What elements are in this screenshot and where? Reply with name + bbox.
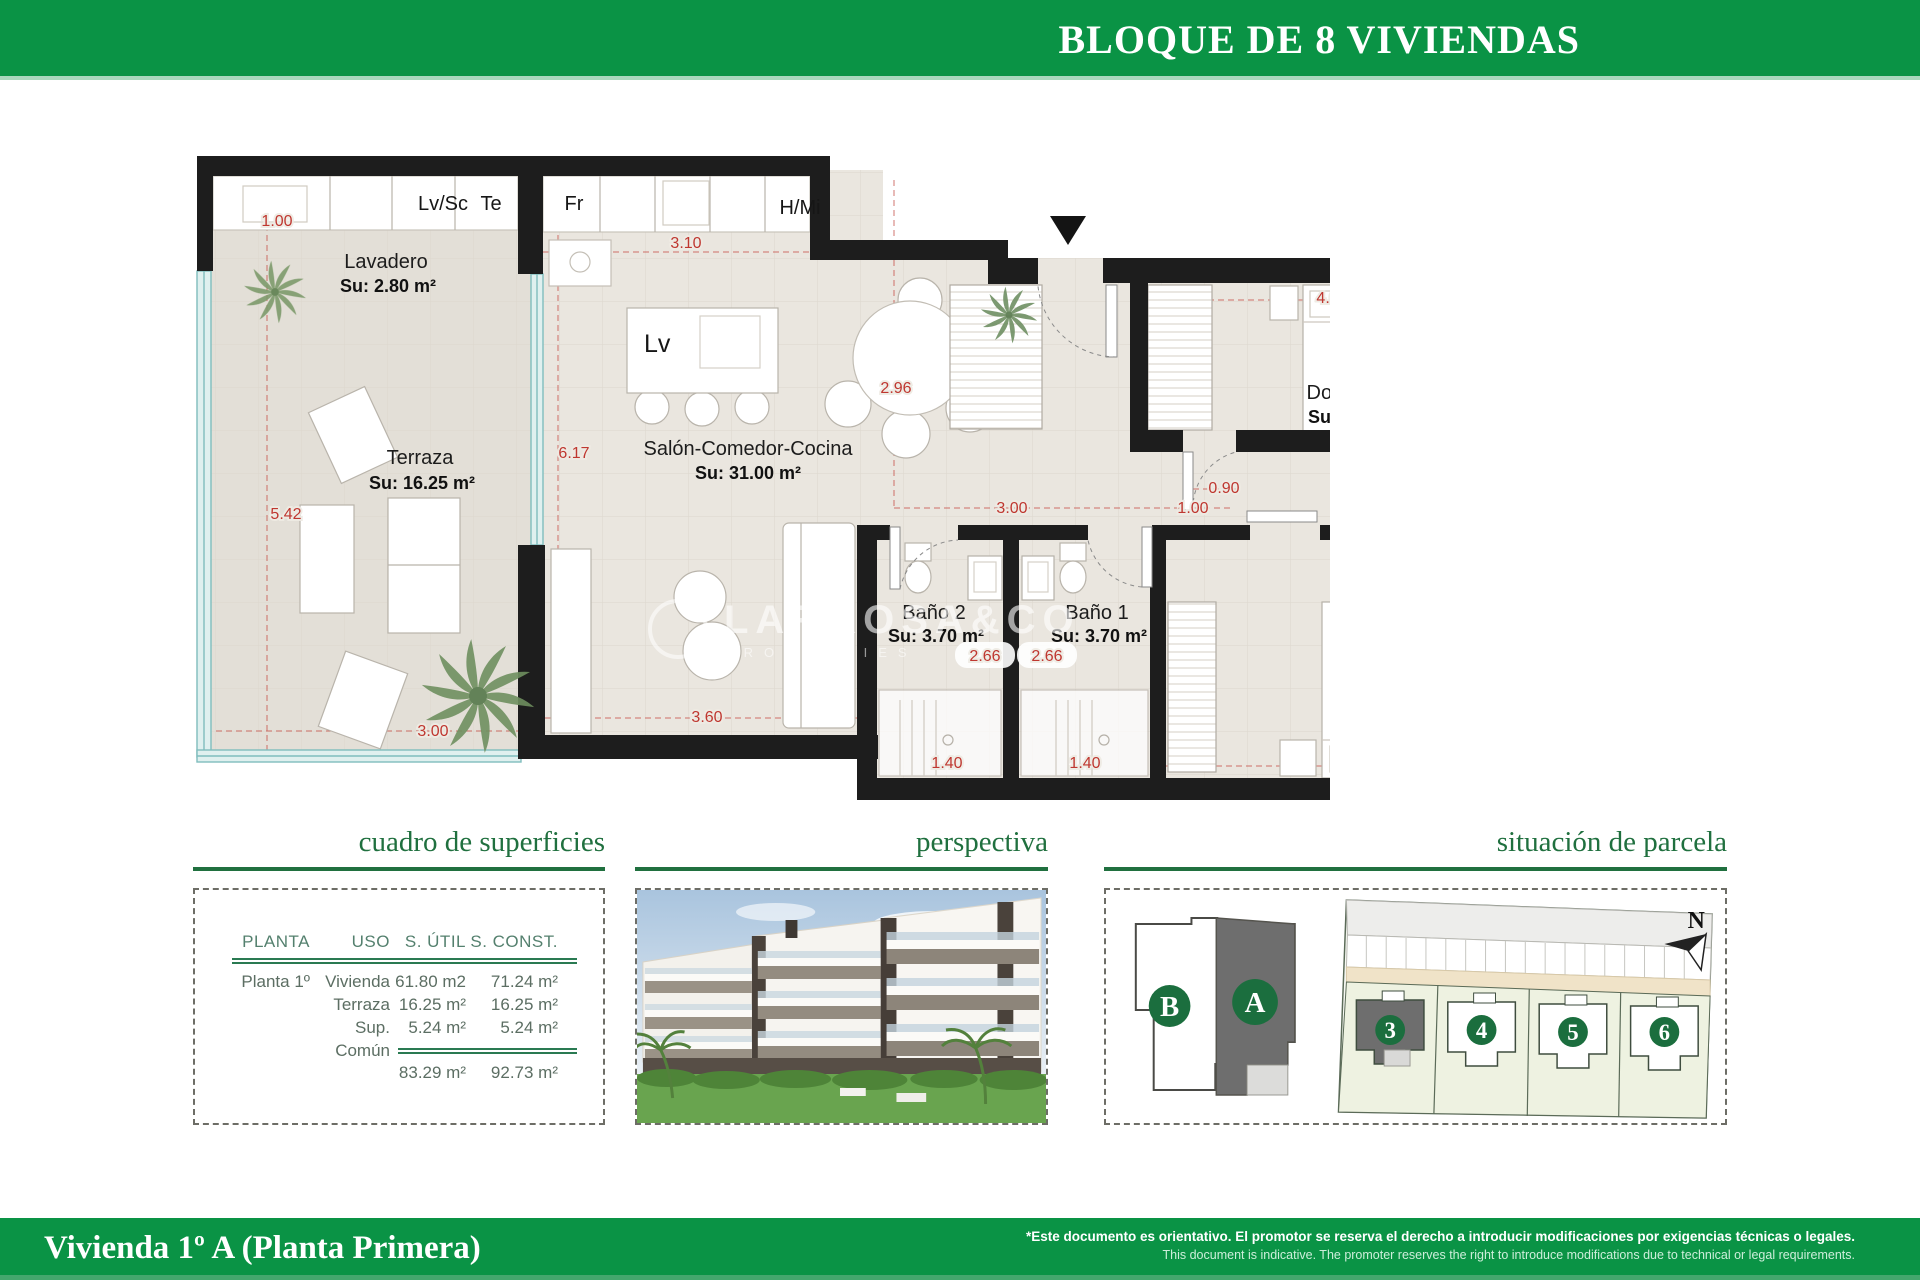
totals-row: 83.29 m² 92.73 m²	[232, 1061, 577, 1084]
plot-3-label: 3	[1384, 1018, 1395, 1043]
dim-terraza-width: 3.00	[417, 723, 448, 740]
fixture-label-lv: Lv	[644, 330, 671, 358]
cell-uso: Terraza	[310, 993, 390, 1016]
perspectiva-box	[635, 888, 1048, 1125]
table-divider	[232, 958, 577, 964]
surface-table: PLANTA USO S. ÚTIL S. CONST. Planta 1º V…	[232, 930, 577, 1084]
dim-bano2-depth: 2.66	[969, 648, 1000, 665]
dim-bano2-width: 1.40	[931, 755, 962, 772]
cell-const: 71.24 m²	[466, 970, 577, 993]
cell-const: 5.24 m²	[466, 1016, 577, 1062]
disclaimer-en: This document is indicative. The promote…	[1026, 1246, 1855, 1265]
col-header-util: S. ÚTIL	[390, 930, 466, 956]
situacion-box: B A	[1104, 888, 1727, 1125]
room-label-dorm2: Dormitorio 2	[1307, 382, 1330, 404]
entrance-arrow-icon	[1050, 216, 1086, 245]
plot-5-label: 5	[1567, 1020, 1578, 1045]
section-underline-perspectiva	[635, 867, 1048, 871]
room-su-dorm2: Su: 10.00 m²	[1308, 407, 1330, 427]
section-title-situacion: situación de parcela	[1104, 826, 1727, 864]
room-label-bano2: Baño 2	[902, 602, 965, 624]
perspective-rendering	[637, 890, 1046, 1123]
col-header-planta: PLANTA	[232, 930, 310, 956]
dim-kitchen: 3.10	[670, 235, 701, 252]
room-su-lavadero: Su: 2.80 m²	[340, 276, 436, 296]
block-a-terrace	[1247, 1065, 1288, 1095]
fixture-label-lvsc: Lv/Sc	[418, 193, 468, 215]
room-su-bano1: Su: 3.70 m²	[1051, 626, 1147, 646]
fixture-label-fr: Fr	[565, 193, 584, 215]
footer-bar-edge	[0, 1275, 1920, 1280]
dim-bano1-depth: 2.66	[1031, 648, 1062, 665]
dim-terraza-height: 5.42	[270, 506, 301, 523]
section-underline-cuadro	[193, 867, 605, 871]
cell-planta	[232, 1016, 310, 1062]
footer-bar: Vivienda 1º A (Planta Primera) *Este doc…	[0, 1218, 1920, 1280]
room-su-terraza: Su: 16.25 m²	[369, 473, 475, 493]
dim-left-top: 1.00	[261, 213, 292, 230]
cell-util: 16.25 m²	[390, 993, 466, 1016]
total-const: 92.73 m²	[466, 1061, 577, 1084]
cell-uso: Vivienda	[310, 970, 390, 993]
col-header-const: S. CONST.	[466, 930, 577, 956]
unit-title: Vivienda 1º A (Planta Primera)	[44, 1218, 481, 1275]
col-header-uso: USO	[310, 930, 390, 956]
dim-dorm2-door: 0.90	[1208, 480, 1239, 497]
dim-table: 2.96	[880, 380, 911, 397]
cell-util: 61.80 m2	[390, 970, 466, 993]
room-label-bano1: Baño 1	[1065, 602, 1128, 624]
fixture-label-te: Te	[480, 193, 501, 215]
cell-uso: Sup. Común	[310, 1016, 390, 1062]
section-title-perspectiva: perspectiva	[635, 826, 1048, 864]
dim-salon-width: 3.60	[691, 709, 722, 726]
section-underline-situacion	[1104, 867, 1727, 871]
floor-plan: Lv/Sc Te Fr H/Mi Lv Lavadero Su: 2.80 m²…	[190, 122, 1330, 814]
site-plan: B A	[1106, 890, 1725, 1123]
cell-planta: Planta 1º	[232, 970, 310, 993]
room-label-lavadero: Lavadero	[344, 251, 427, 273]
header-bar-edge	[0, 76, 1920, 80]
fixture-label-hmi: H/Mi	[779, 197, 820, 219]
cell-planta	[232, 993, 310, 1016]
disclaimer-es: *Este documento es orientativo. El promo…	[1026, 1227, 1855, 1246]
plot-6-label: 6	[1659, 1020, 1670, 1045]
room-label-salon: Salón-Comedor-Cocina	[644, 438, 854, 460]
table-row: Terraza 16.25 m² 16.25 m²	[232, 993, 577, 1016]
table-row: Sup. Común 5.24 m² 5.24 m²	[232, 1016, 577, 1039]
dim-bano1-width: 1.40	[1069, 755, 1100, 772]
dim-dorm2-bed: 4.00	[1316, 290, 1330, 307]
cell-util: 5.24 m²	[390, 1016, 466, 1062]
dim-salon-height: 6.17	[558, 445, 589, 462]
dim-hall-door: 1.00	[1177, 500, 1208, 517]
block-b-label: B	[1160, 991, 1179, 1023]
block-a-label: A	[1245, 987, 1266, 1019]
page: BLOQUE DE 8 VIVIENDAS	[0, 0, 1920, 1280]
plot-4-label: 4	[1476, 1018, 1488, 1043]
section-title-cuadro: cuadro de superficies	[193, 826, 605, 864]
dim-hall-width: 3.00	[996, 500, 1027, 517]
page-title: BLOQUE DE 8 VIVIENDAS	[1059, 0, 1581, 76]
total-util: 83.29 m²	[390, 1061, 466, 1084]
room-su-bano2: Su: 3.70 m²	[888, 626, 984, 646]
room-label-terraza: Terraza	[387, 447, 455, 469]
north-label: N	[1688, 908, 1705, 934]
table-header-row: PLANTA USO S. ÚTIL S. CONST.	[232, 930, 577, 956]
room-su-salon: Su: 31.00 m²	[695, 463, 801, 483]
cell-const: 16.25 m²	[466, 993, 577, 1016]
legal-disclaimer: *Este documento es orientativo. El promo…	[1026, 1227, 1855, 1265]
parcel-map: 3 4 5 6	[1338, 900, 1712, 1118]
header-bar	[0, 0, 1920, 76]
table-row: Planta 1º Vivienda 61.80 m2 71.24 m²	[232, 970, 577, 993]
